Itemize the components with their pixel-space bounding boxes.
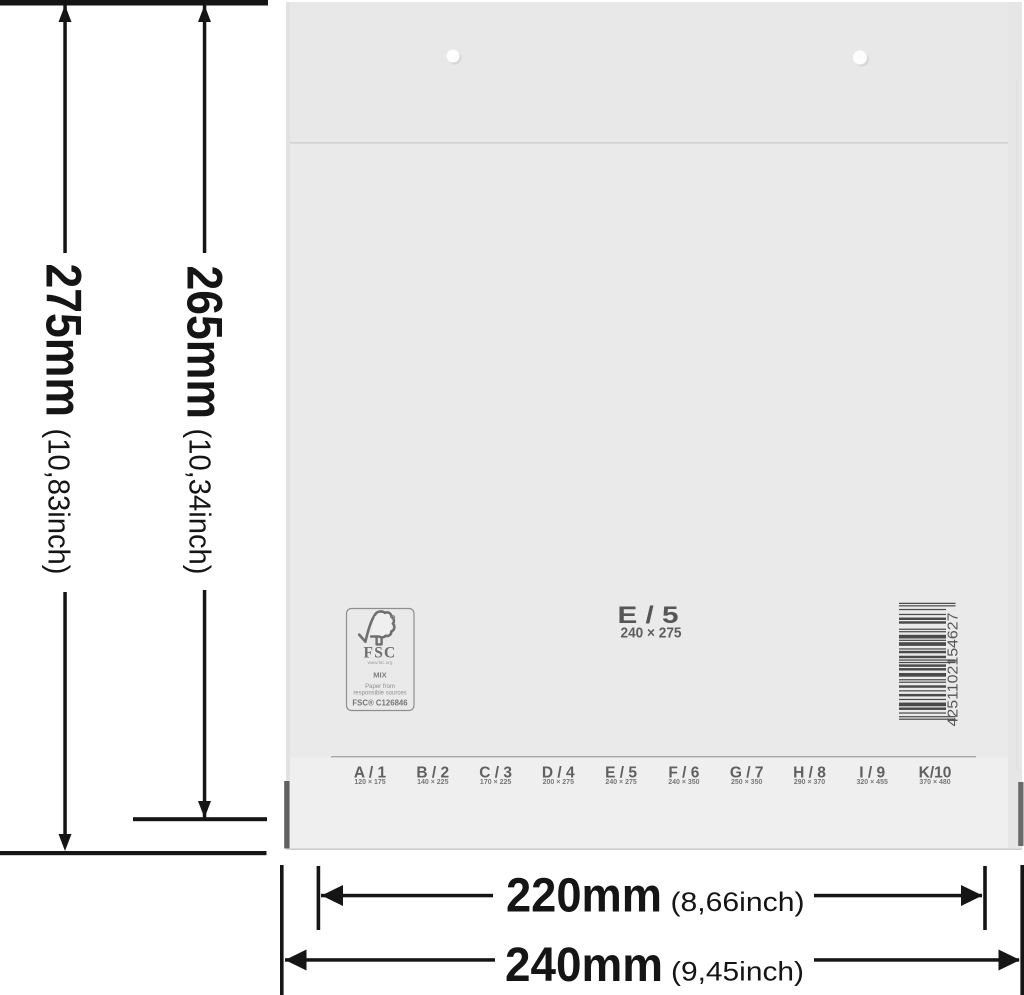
svg-text:FSC: FSC: [364, 645, 397, 662]
svg-text:(10,34inch): (10,34inch): [183, 429, 218, 575]
svg-text:(8,66inch): (8,66inch): [671, 887, 805, 917]
svg-text:275mm: 275mm: [36, 264, 92, 418]
svg-text:200 × 275: 200 × 275: [543, 779, 574, 786]
svg-text:290 × 370: 290 × 370: [794, 779, 825, 786]
svg-text:www.fsc.org: www.fsc.org: [368, 660, 393, 665]
svg-text:370 × 480: 370 × 480: [919, 779, 950, 786]
svg-text:240 × 275: 240 × 275: [605, 779, 636, 786]
svg-text:140 × 225: 140 × 225: [417, 779, 448, 786]
svg-text:265mm: 265mm: [177, 266, 233, 420]
svg-text:120 × 175: 120 × 175: [354, 779, 385, 786]
svg-text:240 × 275: 240 × 275: [621, 626, 682, 642]
svg-text:170 × 225: 170 × 225: [480, 779, 511, 786]
svg-text:240mm: 240mm: [505, 939, 663, 992]
svg-text:4251102154627: 4251102154627: [946, 612, 962, 726]
svg-text:240 × 350: 240 × 350: [668, 779, 699, 786]
svg-text:FSC® C126846: FSC® C126846: [352, 699, 408, 708]
svg-text:(9,45inch): (9,45inch): [671, 957, 804, 987]
svg-text:MIX: MIX: [373, 671, 387, 680]
svg-text:250 × 350: 250 × 350: [731, 779, 762, 786]
svg-text:(10,83inch): (10,83inch): [42, 429, 77, 575]
svg-text:320 × 455: 320 × 455: [857, 779, 888, 786]
svg-text:responsible sources: responsible sources: [353, 691, 406, 697]
svg-text:220mm: 220mm: [506, 869, 662, 923]
svg-text:Paper from: Paper from: [365, 684, 395, 690]
